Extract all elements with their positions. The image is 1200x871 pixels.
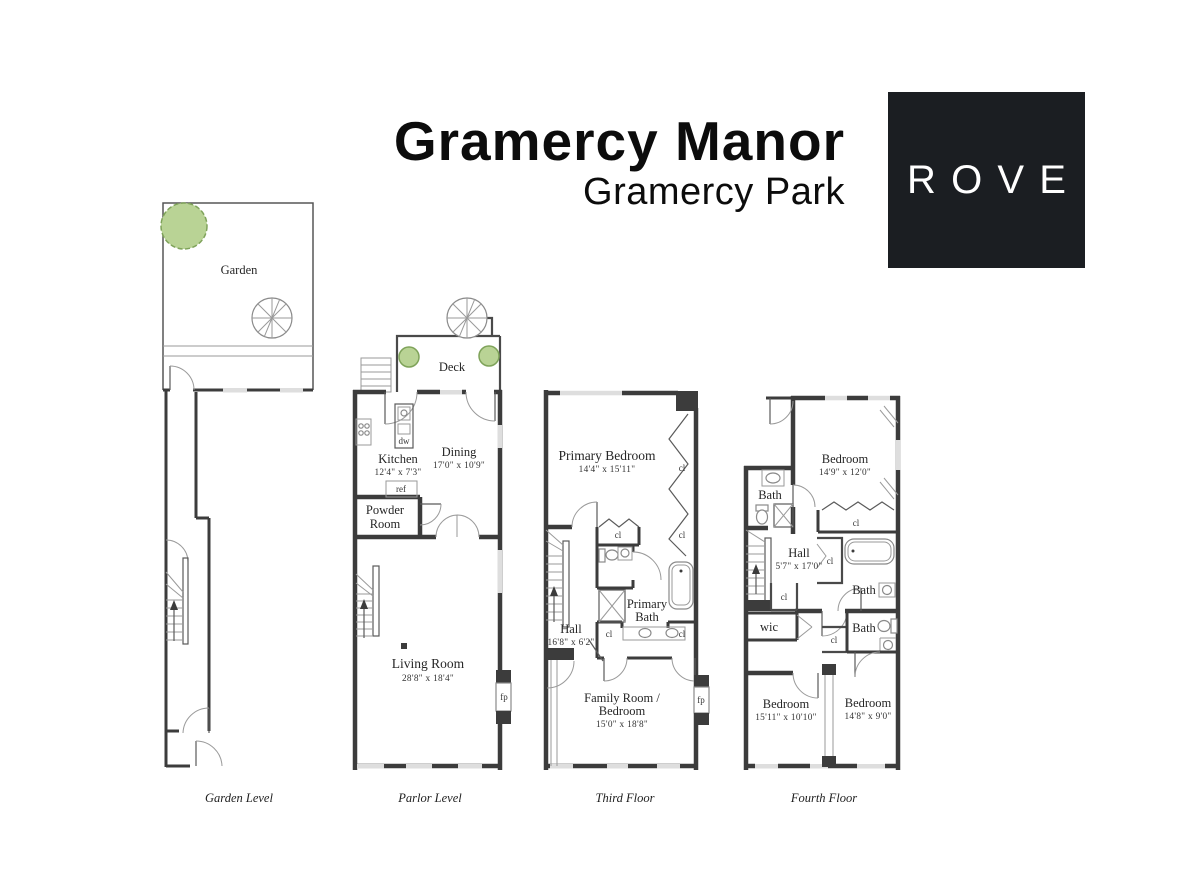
garden-terrace-lines bbox=[163, 346, 313, 356]
closet-accordion-doors bbox=[822, 502, 894, 510]
toilet-icon bbox=[878, 619, 897, 633]
column bbox=[401, 643, 407, 649]
room-dims-primary-bedroom: 14'4" x 15'11" bbox=[579, 465, 636, 475]
room-dims-living: 28'8" x 18'4" bbox=[402, 674, 454, 684]
room-label-deck: Deck bbox=[439, 360, 466, 374]
shower-icon bbox=[774, 504, 793, 527]
stair-box bbox=[361, 358, 391, 392]
cl-label: cl bbox=[679, 629, 686, 639]
door-arc bbox=[196, 741, 222, 766]
sink-icon bbox=[618, 547, 632, 560]
window bbox=[498, 425, 503, 448]
window bbox=[440, 390, 462, 395]
stair-rail bbox=[373, 566, 379, 636]
floor-captions: Garden Level Parlor Level Third Floor Fo… bbox=[205, 791, 857, 805]
spiral-stair-icon bbox=[447, 298, 487, 338]
room-dims-kitchen: 12'4" x 7'3" bbox=[374, 468, 421, 478]
fireplace: fp bbox=[694, 675, 709, 725]
room-label-bath2: Bath bbox=[852, 583, 876, 597]
sink-icon bbox=[880, 638, 896, 651]
cl-label: cl bbox=[827, 556, 834, 566]
fridge: ref bbox=[386, 481, 417, 497]
room-label-primary-bath1: Primary bbox=[627, 597, 668, 611]
sink-icon bbox=[879, 583, 895, 597]
wic-label: wic bbox=[760, 620, 779, 634]
room-label-hall4: Hall bbox=[788, 546, 810, 560]
cl-label: cl bbox=[606, 629, 613, 639]
stair-arrow-head bbox=[170, 600, 178, 610]
cl-label: cl bbox=[615, 530, 622, 540]
bay-window-marks bbox=[880, 406, 898, 499]
french-doors bbox=[436, 515, 479, 537]
door-arcs bbox=[793, 652, 880, 698]
staircase bbox=[746, 530, 772, 611]
window bbox=[458, 764, 482, 769]
cl-label: cl bbox=[679, 530, 686, 540]
room-label-bedroom-top: Bedroom bbox=[822, 452, 869, 466]
window bbox=[560, 391, 622, 396]
walls bbox=[353, 390, 502, 770]
bathtub-icon bbox=[845, 539, 894, 564]
window bbox=[857, 764, 885, 769]
door-arcs bbox=[385, 392, 495, 424]
door-leaves bbox=[604, 658, 695, 681]
closet-door-marks bbox=[797, 615, 812, 639]
window bbox=[550, 764, 573, 769]
tree-icon bbox=[399, 347, 419, 367]
toilet-icon bbox=[756, 505, 768, 524]
fourth-floor-plan: Bedroom 14'9" x 12'0" Bath cl Hall 5'7" … bbox=[744, 396, 900, 770]
wall-stub bbox=[746, 600, 772, 611]
room-dims-hall: 16'8" x 6'2" bbox=[547, 638, 594, 648]
caption-fourth-floor: Fourth Floor bbox=[790, 791, 857, 805]
stair-arrow-head bbox=[752, 564, 760, 574]
door-arcs bbox=[604, 658, 695, 681]
stair-rail bbox=[183, 558, 188, 644]
caption-third-floor: Third Floor bbox=[596, 791, 655, 805]
cl-label: cl bbox=[831, 635, 838, 645]
staircase bbox=[166, 558, 188, 644]
room-label-primary-bath2: Bath bbox=[635, 610, 659, 624]
room-label-family2: Bedroom bbox=[599, 704, 646, 718]
cl-label: cl bbox=[781, 592, 788, 602]
chimney-lines bbox=[551, 660, 557, 766]
window bbox=[868, 396, 890, 401]
room-dims-hall4: 5'7" x 17'0" bbox=[775, 562, 822, 572]
wall-stub bbox=[822, 664, 836, 675]
room-dims-bedroom-top: 14'9" x 12'0" bbox=[819, 468, 871, 478]
room-label-dining: Dining bbox=[442, 445, 477, 459]
caption-garden-level: Garden Level bbox=[205, 791, 273, 805]
staircase bbox=[356, 566, 379, 638]
room-label-bedroom-left: Bedroom bbox=[763, 697, 810, 711]
garden-level-plan: Garden bbox=[161, 203, 313, 767]
room-dims-bedroom-right: 14'8" x 9'0" bbox=[844, 712, 891, 722]
room-label-kitchen: Kitchen bbox=[378, 452, 418, 466]
wall-stub bbox=[546, 648, 574, 660]
stove-icon bbox=[356, 419, 371, 445]
room-label-bath1: Bath bbox=[758, 488, 782, 502]
door-arc bbox=[770, 401, 793, 424]
window bbox=[896, 440, 901, 470]
window bbox=[280, 388, 303, 393]
third-floor-plan: fp Primary Bedroom 14'4" x 15'11" cl cl … bbox=[544, 390, 709, 770]
room-label-family1: Family Room / bbox=[584, 691, 660, 705]
stair-treads bbox=[361, 365, 391, 386]
room-label-powder1: Powder bbox=[366, 503, 405, 517]
wall-notch bbox=[676, 391, 698, 411]
toilet-icon bbox=[599, 549, 618, 562]
door-arc bbox=[170, 366, 194, 390]
door-arc bbox=[183, 708, 209, 733]
floorplan-svg: Garden bbox=[0, 0, 1200, 871]
floorplan-page: Gramercy Manor Gramercy Park ROVE bbox=[0, 0, 1200, 871]
ref-label: ref bbox=[396, 484, 406, 494]
exterior-stairs bbox=[361, 358, 391, 392]
window bbox=[406, 764, 432, 769]
room-dims-family: 15'0" x 18'8" bbox=[596, 720, 648, 730]
room-dims-bedroom-left: 15'11" x 10'10" bbox=[755, 713, 817, 723]
room-label-hall: Hall bbox=[560, 622, 582, 636]
window bbox=[498, 550, 503, 593]
cl-label: cl bbox=[679, 463, 686, 473]
double-vanity bbox=[623, 627, 685, 640]
tree-icon bbox=[161, 203, 207, 249]
partition-lines bbox=[825, 675, 833, 762]
tree-icon bbox=[479, 346, 499, 366]
fp-label: fp bbox=[500, 692, 508, 702]
room-label-bedroom-right: Bedroom bbox=[845, 696, 892, 710]
window bbox=[223, 388, 247, 393]
window bbox=[357, 764, 384, 769]
fp-label: fp bbox=[697, 695, 705, 705]
window bbox=[657, 764, 680, 769]
window bbox=[825, 396, 847, 401]
fireplace: fp bbox=[496, 670, 511, 724]
shower-icon bbox=[599, 590, 625, 622]
door-arc bbox=[166, 540, 188, 562]
caption-parlor-level: Parlor Level bbox=[397, 791, 462, 805]
room-dims-dining: 17'0" x 10'9" bbox=[433, 461, 485, 471]
room-label-primary-bedroom: Primary Bedroom bbox=[558, 448, 656, 463]
window bbox=[755, 764, 778, 769]
closet-accordion-doors bbox=[599, 519, 639, 527]
window bbox=[607, 764, 628, 769]
wall-stub bbox=[822, 756, 836, 767]
room-label-powder2: Room bbox=[370, 517, 401, 531]
stair-rail bbox=[563, 541, 569, 627]
door-arc bbox=[793, 485, 815, 507]
cl-label: cl bbox=[853, 518, 860, 528]
room-label-garden: Garden bbox=[221, 263, 259, 277]
room-label-bath3: Bath bbox=[852, 621, 876, 635]
staircase bbox=[546, 530, 569, 627]
sink-icon bbox=[762, 470, 784, 486]
spiral-stair-icon bbox=[252, 298, 292, 338]
kitchen-island: dw bbox=[395, 404, 413, 448]
room-label-living: Living Room bbox=[392, 656, 465, 671]
bathtub-icon bbox=[669, 562, 693, 609]
parlor-level-plan: dw ref fp Deck Kitchen bbox=[353, 298, 511, 770]
dw-label: dw bbox=[399, 436, 411, 446]
door-arc bbox=[572, 502, 597, 527]
door-arc bbox=[633, 552, 661, 580]
door-arc bbox=[420, 504, 441, 525]
